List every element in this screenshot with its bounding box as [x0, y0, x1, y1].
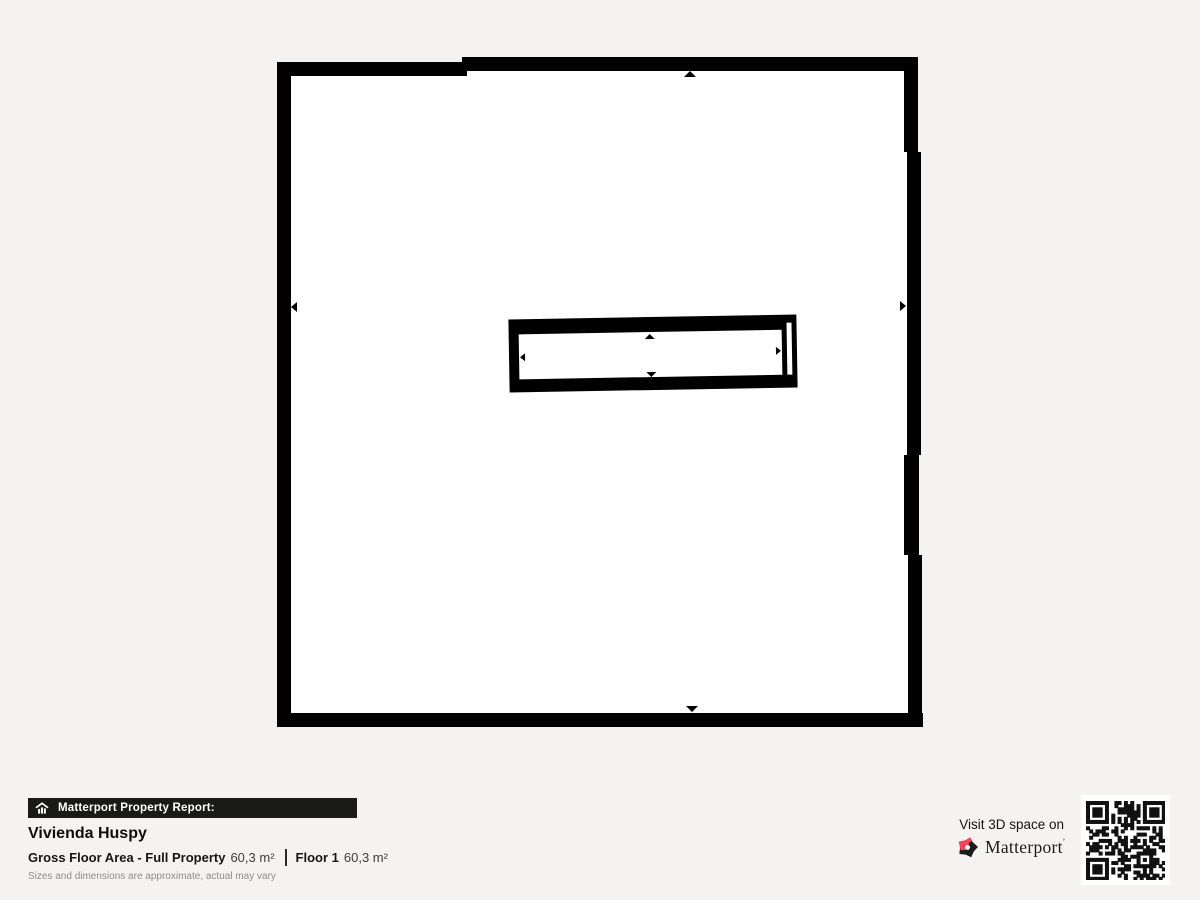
qr-code [1081, 795, 1170, 885]
interior-structure [508, 314, 797, 392]
banner-label: Matterport Property Report: [58, 802, 215, 814]
exterior-wall-right-segment-1 [904, 57, 918, 152]
house-chart-icon [35, 802, 49, 814]
wall-arrow-up-icon [684, 71, 696, 77]
room-interior [288, 66, 910, 716]
structure-arrow-up-icon [645, 334, 655, 339]
matterport-wordmark: Matterport [985, 837, 1063, 857]
exterior-wall-top-right [462, 57, 918, 71]
exterior-wall-right-segment-2 [907, 152, 921, 455]
area-summary: Gross Floor Area - Full Property 60,3 m²… [28, 849, 388, 866]
exterior-wall-left [277, 62, 291, 727]
matterport-pinwheel-icon [956, 835, 979, 859]
report-banner: Matterport Property Report: [28, 798, 357, 818]
gross-area-label: Gross Floor Area - Full Property [28, 850, 225, 865]
disclaimer-text: Sizes and dimensions are approximate, ac… [28, 871, 276, 882]
exterior-wall-top-left [277, 62, 467, 76]
visit-3d-space-text: Visit 3D space on [959, 817, 1064, 832]
wall-arrow-left-icon [291, 302, 297, 312]
matterport-brand: Matterport’ [956, 835, 1065, 859]
structure-arrow-left-icon [520, 353, 525, 361]
gross-area-value: 60,3 m² [230, 850, 274, 865]
structure-arrow-right-icon [776, 347, 781, 355]
exterior-wall-right-segment-4 [908, 555, 922, 727]
separator [285, 849, 287, 866]
exterior-wall-bottom [277, 713, 923, 727]
floor-label: Floor 1 [296, 850, 339, 865]
wall-arrow-right-icon [900, 301, 906, 311]
trademark-mark: ’ [1063, 837, 1065, 847]
wall-arrow-down-icon [686, 706, 698, 712]
structure-door-gap [786, 323, 792, 375]
floor-area-value: 60,3 m² [344, 850, 388, 865]
exterior-wall-right-segment-3 [904, 455, 919, 555]
property-name: Vivienda Huspy [28, 825, 147, 843]
structure-arrow-down-icon [646, 372, 656, 377]
floor-plan [0, 0, 1200, 760]
property-report-page: Matterport Property Report: Vivienda Hus… [0, 0, 1200, 900]
